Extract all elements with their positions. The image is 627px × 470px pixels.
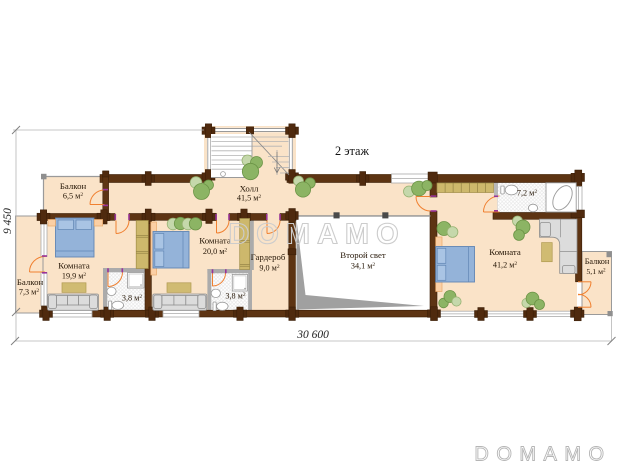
- svg-text:Комната: Комната: [58, 261, 90, 271]
- svg-text:Комната: Комната: [489, 247, 521, 257]
- svg-text:19,9 м2: 19,9 м2: [62, 272, 87, 281]
- svg-text:41,2 м2: 41,2 м2: [493, 261, 518, 270]
- svg-text:Второй свет: Второй свет: [340, 250, 386, 260]
- svg-text:3,8 м2: 3,8 м2: [225, 292, 245, 301]
- svg-text:Холл: Холл: [240, 184, 259, 194]
- svg-text:41,5 м2: 41,5 м2: [237, 194, 262, 203]
- svg-text:6,5 м2: 6,5 м2: [63, 192, 83, 201]
- svg-text:2 этаж: 2 этаж: [335, 144, 369, 158]
- svg-text:20,0 м2: 20,0 м2: [203, 247, 228, 256]
- svg-text:7,2 м2: 7,2 м2: [517, 189, 537, 198]
- svg-text:Комната: Комната: [199, 236, 231, 246]
- svg-text:7,3 м2: 7,3 м2: [19, 288, 39, 297]
- svg-text:34,1 м2: 34,1 м2: [351, 262, 376, 271]
- svg-text:Балкон: Балкон: [17, 277, 44, 287]
- svg-text:9 450: 9 450: [2, 208, 14, 234]
- svg-text:Гардероб: Гардероб: [251, 252, 286, 262]
- svg-text:Балкон: Балкон: [585, 257, 610, 266]
- svg-text:9,0 м2: 9,0 м2: [259, 264, 279, 273]
- svg-text:Балкон: Балкон: [60, 181, 87, 191]
- svg-text:3,8 м2: 3,8 м2: [122, 294, 142, 303]
- svg-text:DOMAMO: DOMAMO: [228, 219, 405, 251]
- svg-text:30 600: 30 600: [296, 329, 329, 341]
- svg-text:DOMAMO: DOMAMO: [474, 444, 611, 466]
